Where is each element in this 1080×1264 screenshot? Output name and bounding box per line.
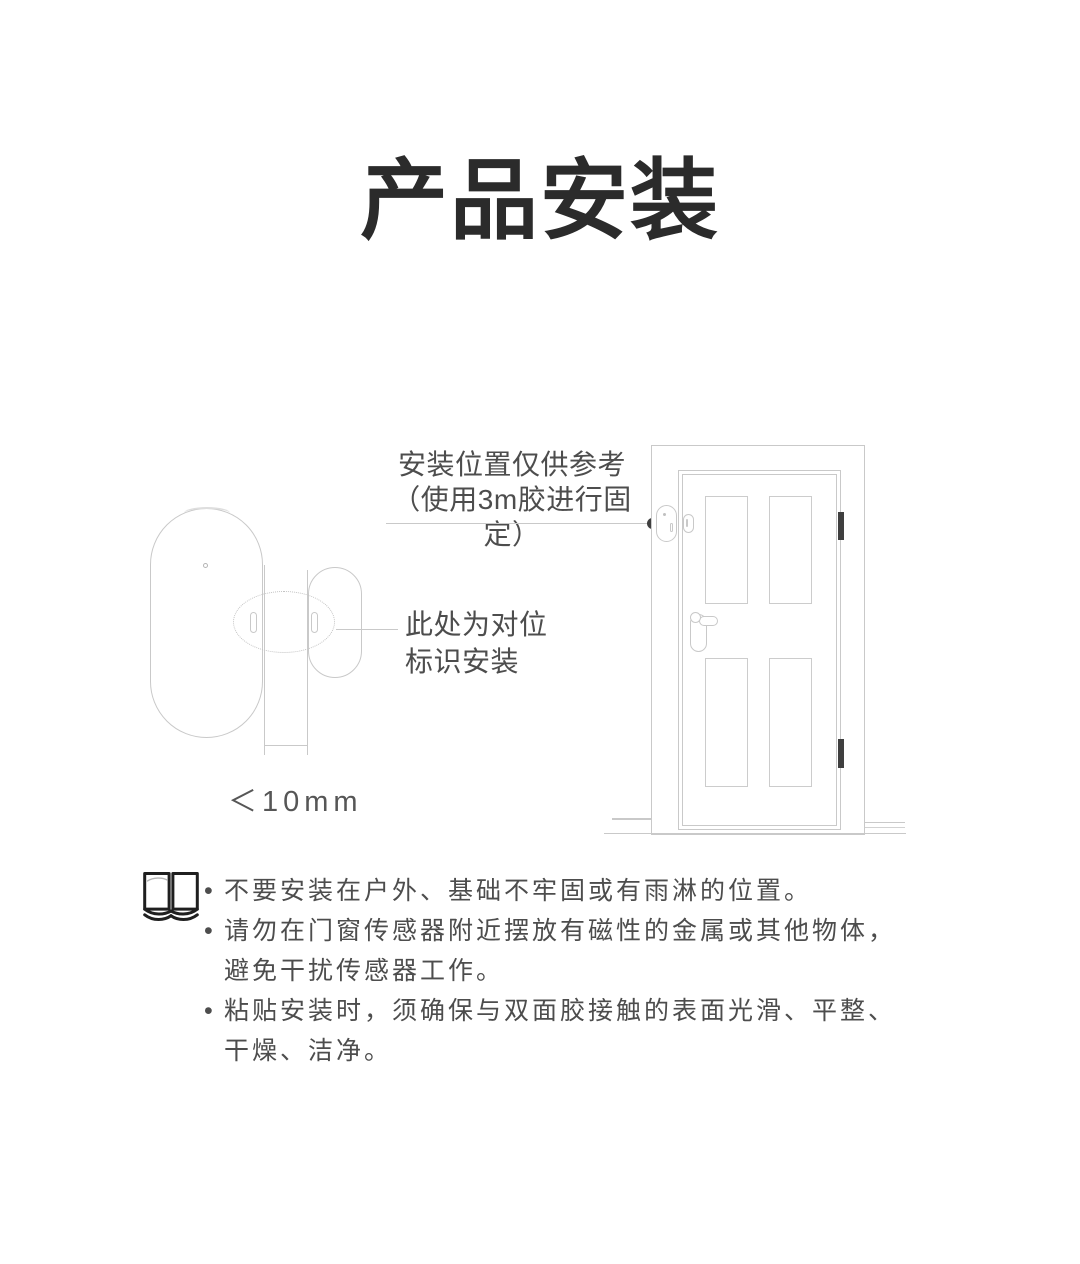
annotation-mounting-position-line1: 安装位置仅供参考	[383, 447, 641, 482]
sensor-top-arc	[184, 507, 230, 519]
door-panel-top-right	[769, 496, 812, 604]
note-item: • 请勿在门窗传感器附近摆放有磁性的金属或其他物体， 避免干扰传感器工作。	[204, 911, 924, 991]
measure-bracket	[264, 745, 307, 746]
measure-line-right	[307, 570, 308, 755]
note-text: 粘贴安装时，须确保与双面胶接触的表面光滑、平整、 干燥、洁净。	[224, 991, 896, 1071]
door-handle-bar	[699, 616, 718, 626]
leader-line-position	[386, 523, 648, 524]
alignment-mark-ellipse	[233, 591, 335, 653]
annotation-mounting-position: 安装位置仅供参考 （使用3m胶进行固定）	[383, 447, 641, 552]
installation-notes: • 不要安装在户外、基础不牢固或有雨淋的位置。 • 请勿在门窗传感器附近摆放有磁…	[204, 871, 924, 1071]
door-panel-bottom-left	[705, 658, 748, 787]
door-hinge-bottom	[838, 739, 844, 768]
note-text: 请勿在门窗传感器附近摆放有磁性的金属或其他物体， 避免干扰传感器工作。	[224, 911, 896, 991]
alignment-mark-right	[311, 612, 318, 633]
mounted-sensor-on-frame	[656, 505, 677, 542]
annotation-alignment: 此处为对位 标识安装	[405, 606, 548, 680]
note-item: • 不要安装在户外、基础不牢固或有雨淋的位置。	[204, 871, 924, 911]
door-panel-bottom-right	[769, 658, 812, 787]
manual-page: 产品安装 ＜10mm 安装位置仅供参考 （使用3m胶进行固定） 此处为对位 标识…	[0, 0, 1080, 1264]
bullet-icon: •	[204, 871, 224, 911]
door-handle-knob	[690, 612, 701, 623]
note-text: 不要安装在户外、基础不牢固或有雨淋的位置。	[224, 871, 812, 911]
door-hinge-top	[838, 512, 844, 540]
annotation-mounting-position-line2: （使用3m胶进行固定）	[383, 482, 641, 552]
ground-line	[604, 833, 906, 834]
mounted-sensor-led	[663, 513, 666, 516]
floor-line-right-upper	[865, 822, 905, 823]
measure-line-left	[264, 565, 265, 755]
annotation-alignment-line1: 此处为对位	[405, 606, 548, 643]
bullet-icon: •	[204, 991, 224, 1031]
annotation-alignment-line2: 标识安装	[405, 643, 548, 680]
door-panel-top-left	[705, 496, 748, 604]
alignment-mark-left	[250, 612, 257, 633]
sensor-led-dot	[203, 563, 208, 568]
mounted-sensor-alignment-mark	[670, 523, 673, 532]
note-item: • 粘贴安装时，须确保与双面胶接触的表面光滑、平整、 干燥、洁净。	[204, 991, 924, 1071]
mounted-magnet-on-door	[683, 514, 694, 533]
page-title: 产品安装	[0, 130, 1080, 257]
bullet-icon: •	[204, 911, 224, 951]
leader-line-alignment	[336, 629, 398, 630]
open-book-icon	[140, 868, 202, 924]
mounted-magnet-alignment-mark	[686, 519, 688, 527]
floor-line-right-lower	[865, 827, 905, 828]
floor-line-left	[612, 818, 651, 820]
gap-distance-label: ＜10mm	[228, 778, 363, 820]
